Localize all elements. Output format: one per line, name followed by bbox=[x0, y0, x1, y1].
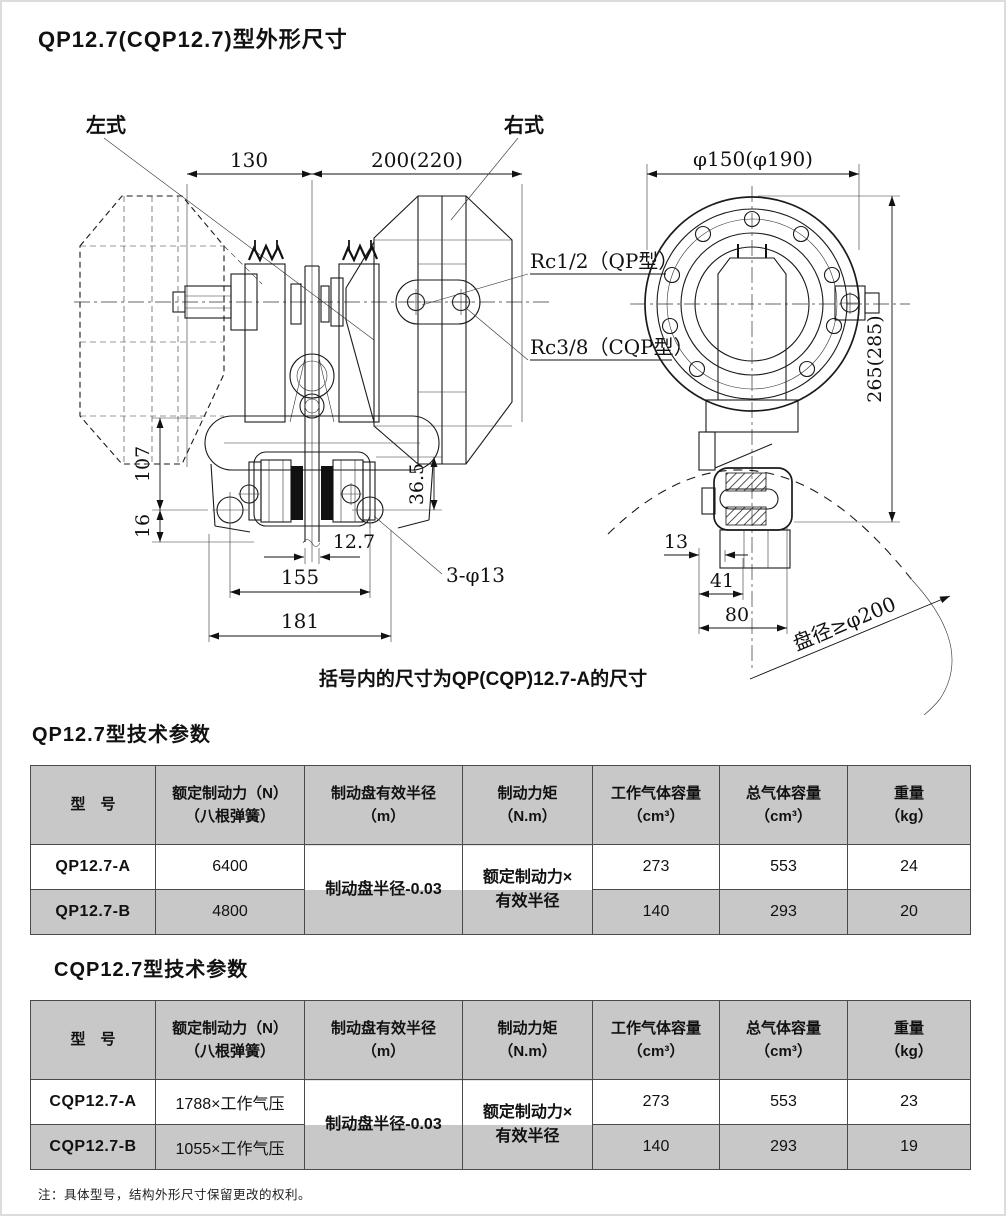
dim-41-label: 41 bbox=[710, 570, 734, 592]
dim-200-label: 200(220) bbox=[371, 148, 463, 172]
dim-181-label: 181 bbox=[281, 609, 319, 633]
cell-total-volume: 293 bbox=[720, 1125, 848, 1170]
col-header-model: 型 号 bbox=[31, 766, 156, 845]
header-row: 型 号 额定制动力（N）（八根弹簧） 制动盘有效半径（m） 制动力矩（N.m） … bbox=[31, 766, 971, 845]
cell-model: CQP12.7-B bbox=[31, 1125, 156, 1170]
dim-155-label: 155 bbox=[281, 565, 319, 589]
cell-total-volume: 553 bbox=[720, 845, 848, 890]
dim-265-label: 265(285) bbox=[864, 315, 886, 402]
qp-table-title: QP12.7型技术参数 bbox=[32, 718, 211, 747]
cell-weight: 23 bbox=[848, 1080, 971, 1125]
dim-3phi13-label: 3-φ13 bbox=[446, 563, 505, 587]
cell-weight: 20 bbox=[848, 890, 971, 935]
cell-work-volume: 140 bbox=[593, 890, 720, 935]
section-hatch bbox=[726, 507, 766, 525]
cell-work-volume: 140 bbox=[593, 1125, 720, 1170]
cell-force: 4800 bbox=[156, 890, 305, 935]
col-header-torque: 制动力矩（N.m） bbox=[463, 766, 593, 845]
table-row: CQP12.7-A 1788×工作气压 制动盘半径-0.03 额定制动力×有效半… bbox=[31, 1080, 971, 1125]
brake-pad bbox=[291, 466, 303, 520]
col-header-weight: 重量（kg） bbox=[848, 766, 971, 845]
col-header-total-volume: 总气体容量（cm³） bbox=[720, 766, 848, 845]
side-view: 130 200(220) 左式 右式 bbox=[74, 113, 694, 642]
dim-12-7-label: 12.7 bbox=[333, 531, 375, 553]
header-row: 型 号 额定制动力（N）（八根弹簧） 制动盘有效半径（m） 制动力矩（N.m） … bbox=[31, 1001, 971, 1080]
cell-work-volume: 273 bbox=[593, 845, 720, 890]
cell-weight: 19 bbox=[848, 1125, 971, 1170]
cell-radius-merged: 制动盘半径-0.03 bbox=[305, 845, 463, 935]
table-row: QP12.7-A 6400 制动盘半径-0.03 额定制动力×有效半径 273 … bbox=[31, 845, 971, 890]
cell-total-volume: 293 bbox=[720, 890, 848, 935]
cell-model: QP12.7-B bbox=[31, 890, 156, 935]
dim-80-label: 80 bbox=[725, 604, 749, 626]
col-header-force: 额定制动力（N）（八根弹簧） bbox=[156, 766, 305, 845]
brake-pad bbox=[321, 466, 333, 520]
cqp-table-title: CQP12.7型技术参数 bbox=[54, 953, 248, 982]
dim-130-label: 130 bbox=[230, 148, 268, 172]
col-header-torque: 制动力矩（N.m） bbox=[463, 1001, 593, 1080]
outline-dimension-drawing: 130 200(220) 左式 右式 bbox=[2, 97, 1006, 715]
datasheet-page: QP12.7(CQP12.7)型外形尺寸 130 200(220) 左式 右式 bbox=[0, 0, 1006, 1216]
right-type-label: 右式 bbox=[504, 113, 544, 137]
col-header-weight: 重量（kg） bbox=[848, 1001, 971, 1080]
port-qp-label: Rc1/2（QP型） bbox=[530, 249, 678, 273]
drawing-caption: 括号内的尺寸为QP(CQP)12.7-A的尺寸 bbox=[319, 667, 647, 690]
port-cqp-label: Rc3/8（CQP型） bbox=[530, 335, 694, 359]
col-header-force: 额定制动力（N）（八根弹簧） bbox=[156, 1001, 305, 1080]
cell-torque-merged: 额定制动力×有效半径 bbox=[463, 845, 593, 935]
dim-phi150-label: φ150(φ190) bbox=[693, 147, 813, 171]
col-header-radius: 制动盘有效半径（m） bbox=[305, 1001, 463, 1080]
cell-force: 6400 bbox=[156, 845, 305, 890]
cell-force: 1055×工作气压 bbox=[156, 1125, 305, 1170]
col-header-work-volume: 工作气体容量（cm³） bbox=[593, 1001, 720, 1080]
left-type-label: 左式 bbox=[86, 113, 126, 137]
cqp-parameters-table: 型 号 额定制动力（N）（八根弹簧） 制动盘有效半径（m） 制动力矩（N.m） … bbox=[30, 1000, 971, 1170]
col-header-total-volume: 总气体容量（cm³） bbox=[720, 1001, 848, 1080]
cell-force: 1788×工作气压 bbox=[156, 1080, 305, 1125]
qp-parameters-table: 型 号 额定制动力（N）（八根弹簧） 制动盘有效半径（m） 制动力矩（N.m） … bbox=[30, 765, 971, 935]
col-header-radius: 制动盘有效半径（m） bbox=[305, 766, 463, 845]
col-header-work-volume: 工作气体容量（cm³） bbox=[593, 766, 720, 845]
cell-model: CQP12.7-A bbox=[31, 1080, 156, 1125]
cell-model: QP12.7-A bbox=[31, 845, 156, 890]
cell-weight: 24 bbox=[848, 845, 971, 890]
cell-total-volume: 553 bbox=[720, 1080, 848, 1125]
footnote: 注：具体型号，结构外形尺寸保留更改的权利。 bbox=[38, 1184, 311, 1203]
section-hatch bbox=[726, 473, 766, 491]
cell-radius-merged: 制动盘半径-0.03 bbox=[305, 1080, 463, 1170]
front-view: φ150(φ190) bbox=[608, 147, 952, 715]
col-header-model: 型 号 bbox=[31, 1001, 156, 1080]
dim-16-label: 16 bbox=[132, 514, 154, 538]
cell-work-volume: 273 bbox=[593, 1080, 720, 1125]
page-title: QP12.7(CQP12.7)型外形尺寸 bbox=[38, 22, 348, 54]
dim-107-label: 107 bbox=[132, 446, 154, 482]
dim-36-5-label: 36.5 bbox=[406, 463, 428, 505]
dim-13-label: 13 bbox=[664, 531, 688, 553]
cell-torque-merged: 额定制动力×有效半径 bbox=[463, 1080, 593, 1170]
